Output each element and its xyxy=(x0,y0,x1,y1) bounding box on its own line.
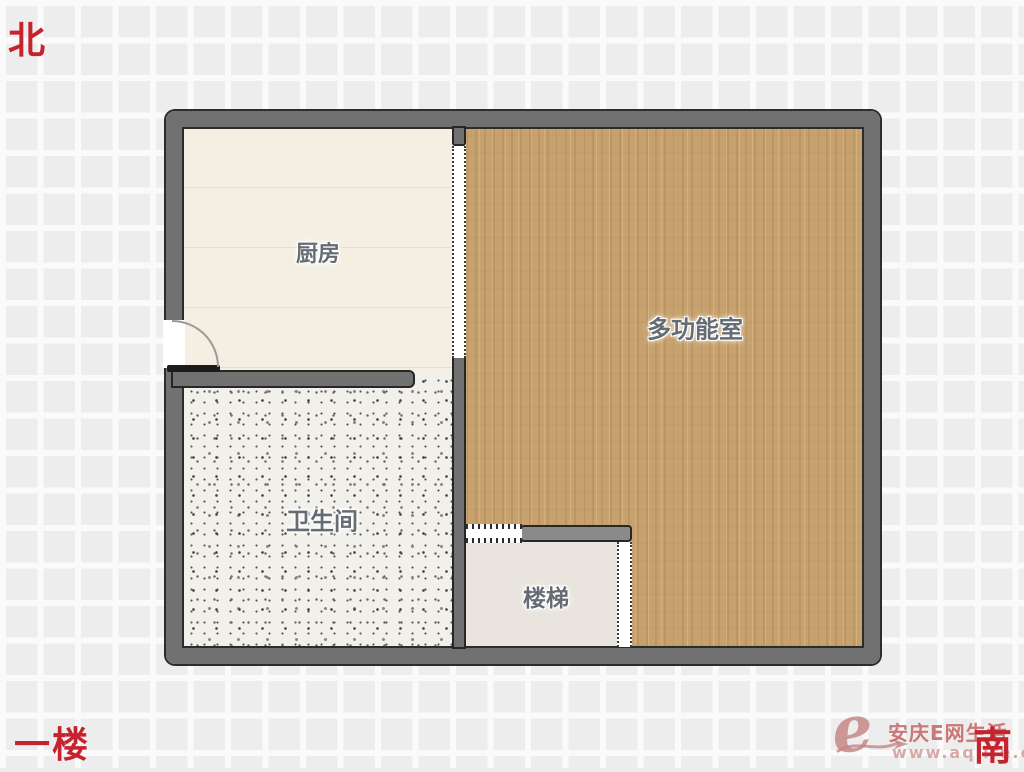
kitchen-divider-wall-stub xyxy=(452,126,466,146)
compass-south-label: 南 xyxy=(973,716,1012,772)
kitchen-multifunction-opening xyxy=(452,146,466,358)
stairs-right-opening xyxy=(617,542,632,647)
stairs-label: 楼梯 xyxy=(523,579,569,613)
bathroom-multifunction-wall xyxy=(452,356,466,649)
bathroom-label: 卫生间 xyxy=(286,502,358,537)
floor-plan-canvas: 厨房 多功能室 卫生间 楼梯 北 一楼 南 e 安庆E网生活 www.aqlif… xyxy=(0,0,1024,768)
compass-north-label: 北 xyxy=(8,10,45,64)
stairs-entry-hatch xyxy=(466,524,522,543)
kitchen-label: 厨房 xyxy=(296,236,340,268)
bathroom-top-wall xyxy=(171,370,415,388)
multifunction-room-label: 多功能室 xyxy=(647,310,743,345)
stairs-top-wall xyxy=(520,525,632,542)
floor-number-label: 一楼 xyxy=(14,716,90,768)
